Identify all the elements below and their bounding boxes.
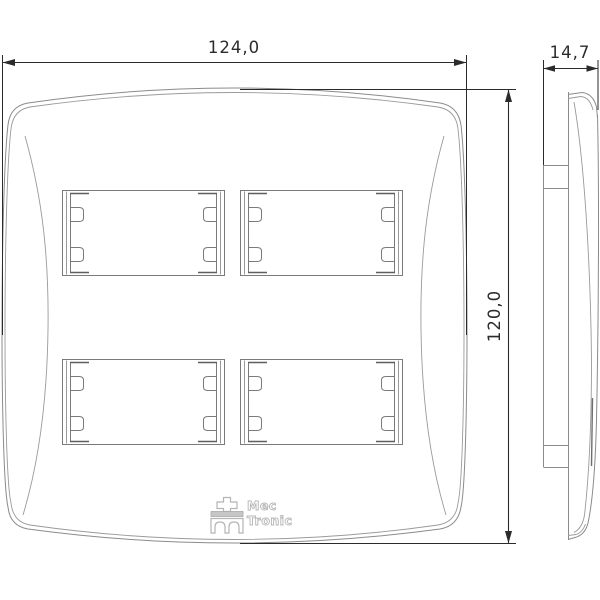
side-view (544, 92, 599, 540)
module-window-top-left (63, 191, 225, 276)
module-window-bottom-right (241, 360, 403, 445)
side-rear-chassis (544, 165, 569, 468)
mectronic-logo: Mec Tronic (211, 498, 293, 534)
side-profile (568, 92, 599, 540)
face-sweep-left (23, 136, 48, 515)
arrowhead-top (505, 90, 512, 103)
logo-text-line2: Tronic (247, 513, 293, 528)
face-sweep-right (421, 136, 446, 515)
logo-bar-icon (211, 512, 243, 517)
logo-cross-icon (217, 498, 237, 512)
arrowhead-left (3, 59, 16, 66)
arrowhead-left (544, 65, 556, 71)
dimension-height: 120,0 (240, 90, 516, 544)
dimension-width-label: 124,0 (208, 38, 260, 57)
logo-text-line1: Mec (247, 498, 277, 513)
front-view: Mec Tronic (2, 88, 467, 543)
drawing-canvas: Mec Tronic (0, 0, 600, 600)
arrowhead-right (454, 59, 467, 66)
plate-outer-contour (2, 88, 467, 543)
plate-inner-contour (5, 93, 464, 540)
dimension-width: 124,0 (3, 38, 467, 335)
dimension-depth: 14,7 (544, 43, 599, 165)
logo-arches-icon (211, 519, 243, 534)
module-window-bottom-left (63, 360, 225, 445)
dimension-height-label: 120,0 (485, 290, 504, 342)
module-window-top-right (241, 191, 403, 276)
dimension-depth-label: 14,7 (550, 43, 591, 62)
arrowhead-bottom (505, 531, 512, 544)
arrowhead-right (587, 65, 599, 71)
drawing-sheet: Mec Tronic (0, 0, 600, 600)
